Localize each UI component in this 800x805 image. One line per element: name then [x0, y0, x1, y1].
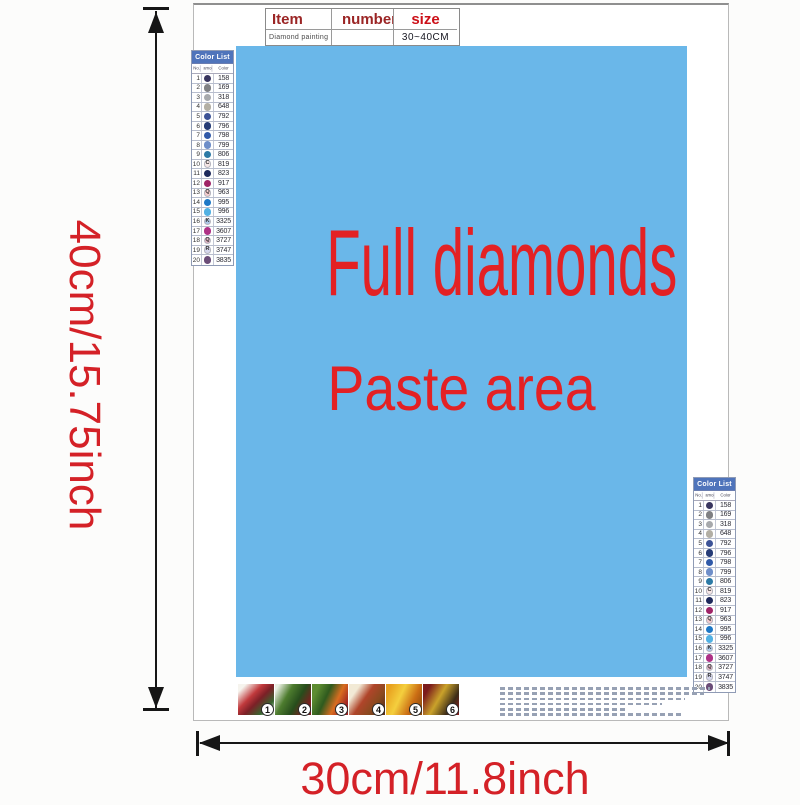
- diamond-color-dot-icon: [706, 549, 714, 557]
- diamond-symbol-cell: K: [202, 217, 214, 226]
- row-number: 16: [694, 644, 704, 653]
- dmc-color-code: 798: [214, 131, 233, 140]
- diamond-color-dot-icon: [706, 511, 714, 519]
- row-number: 19: [192, 246, 202, 255]
- row-number: 10: [694, 587, 704, 596]
- row-number: 11: [192, 169, 202, 178]
- dmc-color-code: 823: [214, 169, 233, 178]
- row-number: 9: [192, 150, 202, 159]
- color-list-left: Color ListNo.DiamondColor115821693318464…: [191, 50, 234, 266]
- dmc-color-code: 3727: [214, 236, 233, 245]
- diamond-symbol-cell: [704, 539, 716, 548]
- diamond-color-dot-icon: [706, 521, 714, 529]
- diamond-color-dot-icon: [204, 199, 212, 207]
- diamond-color-dot-icon: [706, 626, 714, 634]
- horizontal-dimension-line: [200, 742, 728, 744]
- color-list-row: 3318: [192, 93, 233, 103]
- diamond-symbol-cell: [202, 169, 214, 178]
- diamond-symbol-cell: [202, 74, 214, 83]
- color-list-row: 4648: [192, 103, 233, 113]
- color-list-row: 18Q3727: [192, 236, 233, 246]
- color-list-row: 16K3325: [192, 217, 233, 227]
- row-number: 5: [694, 539, 704, 548]
- diamond-color-dot-icon: [204, 113, 212, 121]
- diamond-color-dot-icon: [204, 103, 212, 111]
- paste-area-subtitle: Paste area: [263, 358, 660, 421]
- color-list-title: Color List: [694, 478, 735, 491]
- diamond-color-dot-icon: [204, 94, 212, 102]
- diamond-color-dot-icon: C: [204, 160, 212, 168]
- row-number: 2: [694, 511, 704, 520]
- diamond-symbol-cell: [202, 112, 214, 121]
- color-list-row: 11823: [192, 169, 233, 179]
- arrowhead-up-icon: [148, 12, 164, 33]
- dmc-color-code: 318: [716, 520, 735, 529]
- color-list-row: 12917: [694, 606, 735, 616]
- dmc-color-code: 158: [214, 74, 233, 83]
- dmc-color-code: 648: [214, 103, 233, 112]
- paste-area: Full diamonds Paste area: [236, 46, 687, 677]
- dmc-color-code: 318: [214, 93, 233, 102]
- dmc-color-code: 963: [214, 189, 233, 198]
- dmc-color-code: 169: [214, 84, 233, 93]
- color-list-row: 1158: [694, 501, 735, 511]
- color-list-title: Color List: [192, 51, 233, 64]
- diamond-symbol-cell: [704, 520, 716, 529]
- row-number: 6: [192, 122, 202, 131]
- diamond-color-dot-icon: C: [706, 587, 714, 595]
- diamond-symbol-cell: [202, 84, 214, 93]
- dmc-color-code: 996: [214, 208, 233, 217]
- diamond-symbol-cell: [202, 122, 214, 131]
- diamond-color-dot-icon: [706, 607, 714, 615]
- diamond-color-dot-icon: [204, 75, 212, 83]
- diamond-color-dot-icon: Q: [706, 664, 714, 672]
- dmc-color-code: 3325: [716, 644, 735, 653]
- row-number: 7: [192, 131, 202, 140]
- step-thumbnail: 1: [238, 684, 274, 715]
- row-number: 15: [192, 208, 202, 217]
- table-header-item: Item: [266, 9, 332, 30]
- step-thumbnails: 123456: [238, 684, 460, 715]
- row-number: 4: [192, 103, 202, 112]
- row-number: 2: [192, 84, 202, 93]
- dmc-color-code: 792: [214, 112, 233, 121]
- color-list-column-headers: No.DiamondColor: [694, 491, 735, 501]
- diamond-color-dot-icon: [204, 256, 212, 264]
- diamond-symbol-cell: [202, 131, 214, 140]
- dmc-color-code: 995: [214, 198, 233, 207]
- diamond-color-dot-icon: [204, 84, 212, 92]
- dmc-color-code: 806: [214, 150, 233, 159]
- dmc-color-code: 169: [716, 511, 735, 520]
- diamond-symbol-cell: [704, 577, 716, 586]
- row-number: 4: [694, 530, 704, 539]
- step-number-badge: 3: [335, 703, 348, 716]
- diamond-symbol-cell: K: [704, 644, 716, 653]
- dmc-color-code: 3835: [214, 255, 233, 265]
- table-header-number: number: [332, 9, 394, 30]
- paste-area-title: Full diamonds: [326, 216, 597, 310]
- step-thumbnail: 4: [349, 684, 385, 715]
- row-number: 13: [192, 189, 202, 198]
- diamond-color-dot-icon: [706, 540, 714, 548]
- diamond-symbol-cell: [704, 530, 716, 539]
- dmc-color-code: 917: [214, 179, 233, 188]
- step-number-badge: 2: [298, 703, 311, 716]
- step-number-badge: 6: [446, 703, 459, 716]
- diamond-color-dot-icon: [706, 530, 714, 538]
- step-number-badge: 4: [372, 703, 385, 716]
- diamond-symbol-cell: [704, 549, 716, 558]
- diamond-symbol-cell: Q: [202, 189, 214, 198]
- color-list-row: 8799: [192, 141, 233, 151]
- fine-print-line: [500, 692, 704, 695]
- row-number: 6: [694, 549, 704, 558]
- color-list-row: 2169: [694, 511, 735, 521]
- diamond-symbol-cell: C: [202, 160, 214, 169]
- row-number: 15: [694, 635, 704, 644]
- color-list-row: 15996: [192, 208, 233, 218]
- diamond-symbol-cell: Q: [704, 663, 716, 672]
- diamond-symbol-cell: [704, 568, 716, 577]
- dmc-color-code: 995: [716, 625, 735, 634]
- dmc-color-code: 819: [214, 160, 233, 169]
- column-header: Diamond: [204, 65, 213, 71]
- fine-print-line: [500, 698, 685, 701]
- dmc-color-code: 3325: [214, 217, 233, 226]
- diamond-symbol-cell: [704, 596, 716, 605]
- row-number: 18: [192, 236, 202, 245]
- vertical-dimension-cap-bottom: [143, 708, 169, 711]
- diamond-color-dot-icon: R: [204, 246, 212, 254]
- color-list-row: 203835: [192, 255, 233, 265]
- color-list-row: 3318: [694, 520, 735, 530]
- diamond-color-dot-icon: K: [204, 218, 212, 226]
- dmc-color-code: 3747: [716, 673, 735, 682]
- dmc-color-code: 799: [716, 568, 735, 577]
- diamond-symbol-cell: [202, 227, 214, 236]
- vertical-dimension-line: [155, 11, 157, 710]
- row-number: 14: [192, 198, 202, 207]
- dmc-color-code: 798: [716, 558, 735, 567]
- diamond-color-dot-icon: [706, 559, 714, 567]
- color-list-row: 10C819: [694, 587, 735, 597]
- row-number: 17: [694, 654, 704, 663]
- diamond-color-dot-icon: Q: [204, 237, 212, 245]
- diamond-color-dot-icon: [204, 170, 212, 178]
- dmc-color-code: 796: [214, 122, 233, 131]
- color-list-row: 7798: [694, 558, 735, 568]
- diamond-color-dot-icon: [204, 132, 212, 140]
- diamond-symbol-cell: [202, 208, 214, 217]
- diamond-color-dot-icon: [706, 502, 714, 510]
- step-number-badge: 1: [261, 703, 274, 716]
- table-header-size: size: [394, 9, 457, 30]
- table-cell-number: [332, 30, 394, 45]
- instructions-fine-print: [500, 687, 710, 719]
- dmc-color-code: 806: [716, 577, 735, 586]
- column-header: No.: [695, 492, 702, 498]
- row-number: 11: [694, 596, 704, 605]
- diamond-symbol-cell: Q: [704, 616, 716, 625]
- dmc-color-code: 823: [716, 596, 735, 605]
- arrowhead-down-icon: [148, 687, 164, 708]
- diamond-symbol-cell: [704, 558, 716, 567]
- color-list-row: 6796: [192, 122, 233, 132]
- diamond-color-dot-icon: [204, 122, 212, 130]
- diamond-symbol-cell: R: [704, 673, 716, 682]
- color-list-row: 7798: [192, 131, 233, 141]
- diamond-symbol-cell: [704, 606, 716, 615]
- row-number: 12: [694, 606, 704, 615]
- dmc-color-code: 3727: [716, 663, 735, 672]
- dmc-color-code: 158: [716, 501, 735, 510]
- row-number: 20: [192, 255, 202, 265]
- color-list-right: Color ListNo.DiamondColor115821693318464…: [693, 477, 736, 693]
- row-number: 8: [694, 568, 704, 577]
- diamond-symbol-cell: [202, 179, 214, 188]
- color-list-row: 9806: [192, 150, 233, 160]
- diamond-color-dot-icon: K: [706, 645, 714, 653]
- step-number-badge: 5: [409, 703, 422, 716]
- color-list-row: 5792: [694, 539, 735, 549]
- diamond-symbol-cell: [202, 103, 214, 112]
- diamond-color-dot-icon: R: [706, 673, 714, 681]
- dmc-color-code: 796: [716, 549, 735, 558]
- row-number: 13: [694, 616, 704, 625]
- diamond-color-dot-icon: Q: [204, 189, 212, 197]
- diamond-symbol-cell: [704, 511, 716, 520]
- dmc-color-code: 799: [214, 141, 233, 150]
- dmc-color-code: 3835: [716, 682, 735, 692]
- row-number: 5: [192, 112, 202, 121]
- diamond-color-dot-icon: Q: [706, 616, 714, 624]
- diamond-symbol-cell: C: [704, 587, 716, 596]
- step-thumbnail: 3: [312, 684, 348, 715]
- color-list-row: 6796: [694, 549, 735, 559]
- row-number: 17: [192, 227, 202, 236]
- arrowhead-right-icon: [708, 735, 729, 751]
- color-list-row: 19R3747: [192, 246, 233, 256]
- color-list-row: 19R3747: [694, 673, 735, 683]
- diamond-symbol-cell: Q: [202, 236, 214, 245]
- column-header: Color: [217, 65, 231, 71]
- color-list-row: 14995: [694, 625, 735, 635]
- diamond-color-dot-icon: [204, 141, 212, 149]
- color-list-row: 5792: [192, 112, 233, 122]
- color-list-row: 173607: [192, 227, 233, 237]
- step-thumbnail: 2: [275, 684, 311, 715]
- dmc-color-code: 819: [716, 587, 735, 596]
- row-number: 3: [192, 93, 202, 102]
- color-list-row: 2169: [192, 84, 233, 94]
- dmc-color-code: 3607: [214, 227, 233, 236]
- dmc-color-code: 648: [716, 530, 735, 539]
- fine-print-line: [500, 713, 681, 716]
- fine-print-line: [500, 708, 628, 711]
- color-list-row: 8799: [694, 568, 735, 578]
- diamond-color-dot-icon: [706, 654, 714, 662]
- row-number: 18: [694, 663, 704, 672]
- color-list-row: 15996: [694, 635, 735, 645]
- diamond-symbol-cell: [202, 141, 214, 150]
- diamond-color-dot-icon: [204, 180, 212, 188]
- dmc-color-code: 917: [716, 606, 735, 615]
- diamond-color-dot-icon: [204, 208, 212, 216]
- color-list-row: 18Q3727: [694, 663, 735, 673]
- diamond-symbol-cell: [704, 625, 716, 634]
- dmc-color-code: 3747: [214, 246, 233, 255]
- row-number: 3: [694, 520, 704, 529]
- column-header: No.: [193, 65, 200, 71]
- diamond-symbol-cell: [704, 501, 716, 510]
- color-list-row: 12917: [192, 179, 233, 189]
- color-list-row: 13Q963: [694, 616, 735, 626]
- diamond-color-dot-icon: [706, 597, 714, 605]
- table-cell-size: 30~40CM: [394, 30, 457, 45]
- fine-print-line: [500, 687, 710, 690]
- vertical-dimension-cap-top: [143, 7, 169, 10]
- row-number: 1: [192, 74, 202, 83]
- color-list-column-headers: No.DiamondColor: [192, 64, 233, 74]
- color-list-row: 10C819: [192, 160, 233, 170]
- height-dimension-label: 40cm/15.75inch: [59, 220, 109, 531]
- row-number: 10: [192, 160, 202, 169]
- column-header: Diamond: [706, 492, 715, 498]
- width-dimension-label: 30cm/11.8inch: [300, 753, 589, 805]
- color-list-row: 173607: [694, 654, 735, 664]
- step-thumbnail: 5: [386, 684, 422, 715]
- diamond-symbol-cell: [202, 150, 214, 159]
- color-list-row: 13Q963: [192, 189, 233, 199]
- color-list-row: 9806: [694, 577, 735, 587]
- fine-print-line: [500, 703, 662, 706]
- dmc-color-code: 3607: [716, 654, 735, 663]
- color-list-row: 16K3325: [694, 644, 735, 654]
- row-number: 8: [192, 141, 202, 150]
- diamond-color-dot-icon: [204, 151, 212, 159]
- row-number: 1: [694, 501, 704, 510]
- column-header: Color: [719, 492, 733, 498]
- row-number: 14: [694, 625, 704, 634]
- diamond-symbol-cell: R: [202, 246, 214, 255]
- row-number: 9: [694, 577, 704, 586]
- row-number: 7: [694, 558, 704, 567]
- color-list-row: 1158: [192, 74, 233, 84]
- row-number: 19: [694, 673, 704, 682]
- diamond-color-dot-icon: [706, 578, 714, 586]
- diamond-symbol-cell: [202, 255, 214, 265]
- item-info-table: Item number size Diamond painting 30~40C…: [265, 8, 460, 46]
- color-list-row: 11823: [694, 596, 735, 606]
- row-number: 16: [192, 217, 202, 226]
- diamond-symbol-cell: [704, 654, 716, 663]
- step-thumbnail: 6: [423, 684, 459, 715]
- dmc-color-code: 963: [716, 616, 735, 625]
- dmc-color-code: 996: [716, 635, 735, 644]
- diamond-symbol-cell: [202, 93, 214, 102]
- diamond-symbol-cell: [202, 198, 214, 207]
- dmc-color-code: 792: [716, 539, 735, 548]
- color-list-row: 4648: [694, 530, 735, 540]
- arrowhead-left-icon: [199, 735, 220, 751]
- diamond-color-dot-icon: [706, 568, 714, 576]
- color-list-row: 14995: [192, 198, 233, 208]
- diamond-color-dot-icon: [204, 227, 212, 235]
- table-cell-item: Diamond painting: [266, 30, 332, 45]
- diamond-symbol-cell: [704, 635, 716, 644]
- diamond-color-dot-icon: [706, 635, 714, 643]
- row-number: 12: [192, 179, 202, 188]
